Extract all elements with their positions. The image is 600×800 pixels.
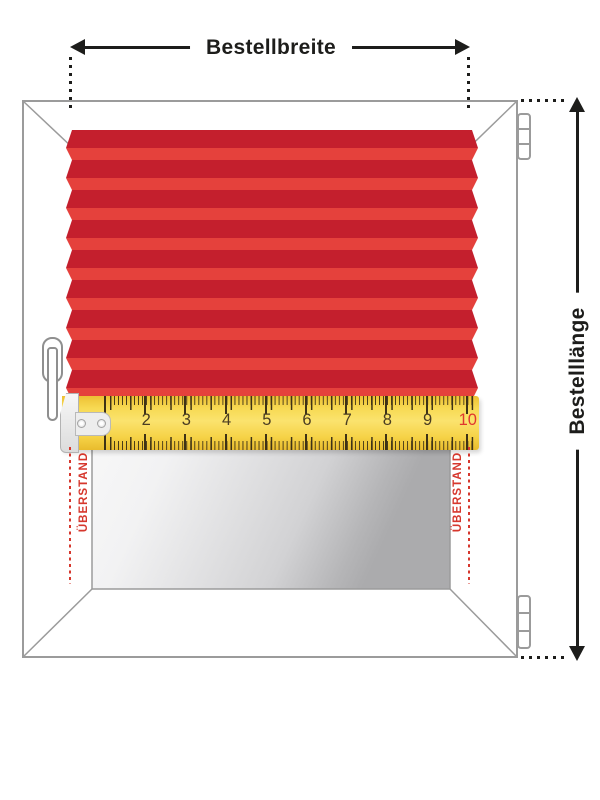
- pleat-light: [66, 298, 478, 310]
- pleat-light: [66, 238, 478, 250]
- tape-number: 4: [222, 411, 231, 430]
- pleat-light: [66, 148, 478, 160]
- tape-tick-major-bottom: [345, 434, 347, 450]
- pleat-dark: [66, 250, 478, 268]
- pleat-dark: [66, 370, 478, 388]
- tape-tick-major-bottom: [184, 434, 186, 450]
- pleat-dark: [66, 310, 478, 328]
- tape-tick-major-bottom: [426, 434, 428, 450]
- length-arrowhead-down-icon: [569, 646, 585, 661]
- width-label: Bestellbreite: [190, 36, 352, 60]
- length-connector-top: [521, 99, 568, 102]
- tape-number: 9: [423, 411, 432, 430]
- length-arrowhead-up-icon: [569, 97, 585, 112]
- pleat-dark: [66, 130, 478, 148]
- measurement-diagram: 12345678910 ÜBERSTAND ÜBERSTAND Bestellb…: [0, 0, 600, 800]
- tape-scale: 12345678910: [62, 396, 479, 450]
- width-guide-right: [467, 57, 470, 111]
- overhang-line-left: [69, 447, 71, 584]
- overhang-label-right: ÜBERSTAND: [452, 452, 464, 532]
- pleat-light: [66, 178, 478, 190]
- tape-number: 2: [142, 411, 151, 430]
- tape-number: 7: [343, 411, 352, 430]
- window-handle-grip: [47, 347, 58, 421]
- tape-number: 10: [459, 411, 477, 430]
- tape-end-hook: [60, 393, 114, 453]
- tape-tick-major-bottom: [385, 434, 387, 450]
- hinge-top: [517, 113, 531, 160]
- tape-number: 3: [182, 411, 191, 430]
- length-connector-bottom: [521, 656, 568, 659]
- tape-number: 8: [383, 411, 392, 430]
- pleat-light: [66, 328, 478, 340]
- tape-rivet-left: [77, 419, 86, 428]
- pleat-light: [66, 358, 478, 370]
- overhang-label-left: ÜBERSTAND: [78, 452, 90, 532]
- tape-number: 5: [262, 411, 271, 430]
- tape-tick-major-bottom: [305, 434, 307, 450]
- hinge-bottom: [517, 595, 531, 649]
- tape-tick-major-bottom: [265, 434, 267, 450]
- pleat-dark: [66, 340, 478, 358]
- length-label: Bestelllänge: [566, 292, 590, 449]
- pleat-light: [66, 208, 478, 220]
- pleat-dark: [66, 220, 478, 238]
- pleat-dark: [66, 280, 478, 298]
- pleat-dark: [66, 190, 478, 208]
- tape-tick-major-bottom: [144, 434, 146, 450]
- width-arrowhead-right-icon: [455, 39, 470, 55]
- tape-rivet-right: [97, 419, 106, 428]
- tape-tick-major-bottom: [225, 434, 227, 450]
- overhang-line-right: [468, 447, 470, 584]
- pleat-light: [66, 268, 478, 280]
- pleated-blind: [66, 130, 478, 400]
- width-guide-left: [69, 57, 72, 111]
- pleat-dark: [66, 160, 478, 178]
- tape-number: 6: [302, 411, 311, 430]
- width-arrowhead-left-icon: [70, 39, 85, 55]
- measuring-tape: 12345678910: [62, 396, 479, 450]
